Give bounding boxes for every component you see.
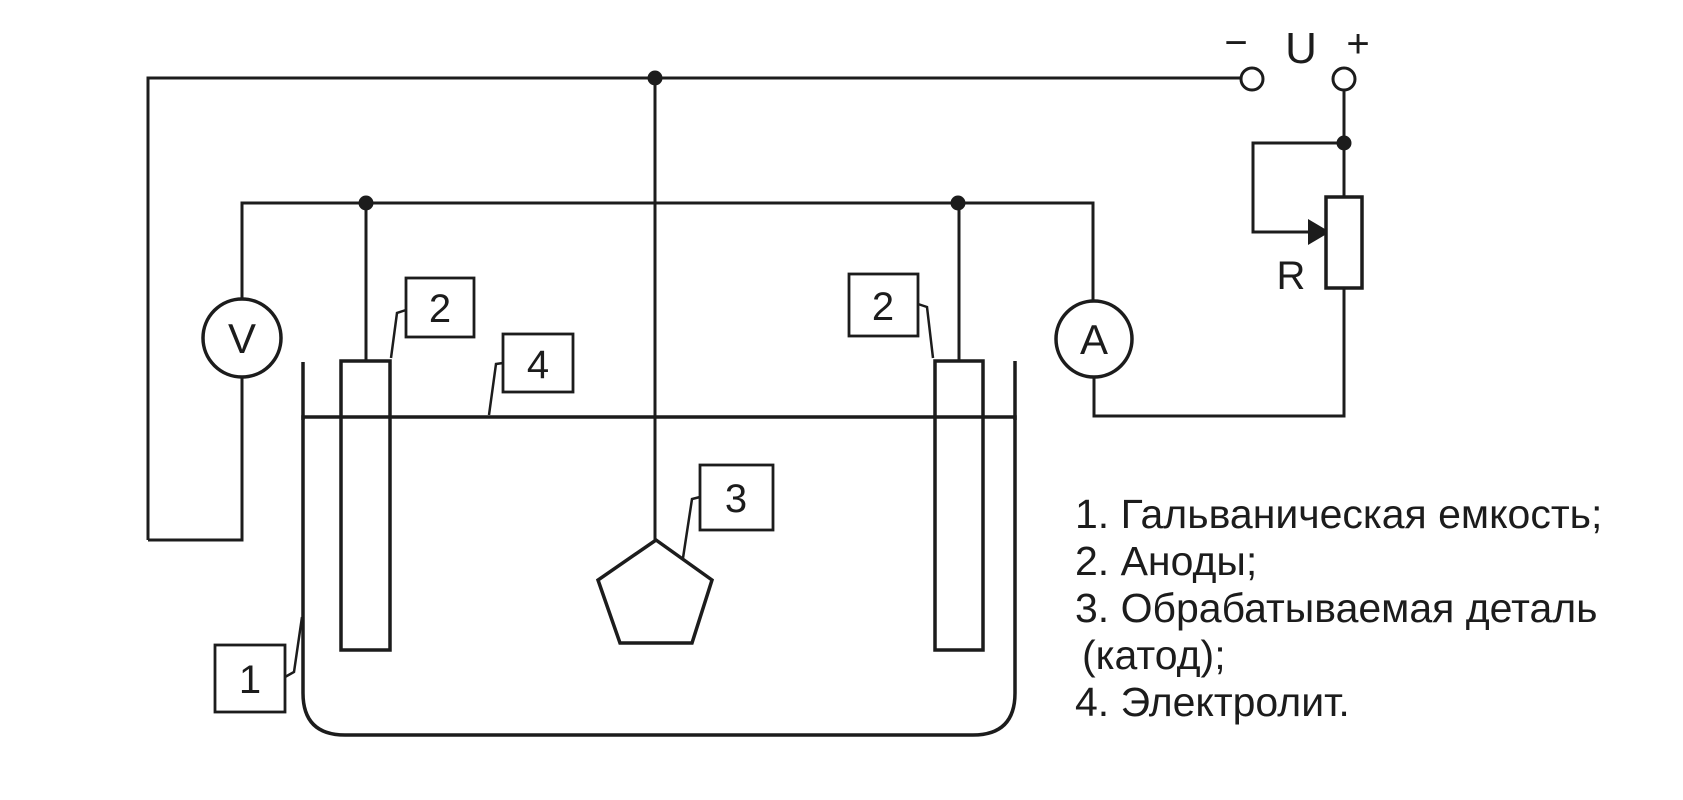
leader-anode-left	[391, 310, 406, 358]
legend-line-5: 4. Электролит.	[1075, 679, 1350, 725]
legend-line-1: 1. Гальваническая емкость;	[1075, 491, 1602, 537]
legend-line-3: 3. Обрабатываемая деталь	[1075, 585, 1598, 631]
legend-line-4: (катод);	[1082, 632, 1226, 678]
callout-label-electrolyte: 4	[527, 343, 549, 387]
minus-terminal	[1241, 68, 1263, 90]
supply-voltage-label: U	[1285, 24, 1317, 73]
voltmeter-label: V	[228, 315, 256, 362]
leader-tank	[285, 617, 302, 677]
anode-right	[935, 361, 983, 650]
leader-anode-right	[918, 304, 933, 358]
callout-label-workpiece: 3	[725, 477, 747, 521]
wire-voltmeter-bottom	[148, 377, 242, 540]
wire-anode-bus	[242, 203, 1093, 301]
rheostat-label: R	[1277, 254, 1306, 298]
anode-left	[341, 361, 390, 650]
supply-minus-label: −	[1224, 21, 1247, 65]
callout-label-anode-left: 2	[429, 287, 451, 331]
electrolyte-fill	[303, 417, 1015, 735]
ammeter-label: A	[1080, 316, 1108, 363]
legend-line-2: 2. Аноды;	[1075, 538, 1257, 584]
junction-dot	[1337, 136, 1352, 151]
rheostat-body	[1326, 197, 1362, 288]
junction-dot	[359, 196, 374, 211]
electroplating-diagram: − U + R V A 1 2 4 3	[0, 0, 1683, 800]
callout-label-anode-right: 2	[872, 285, 894, 329]
junction-dot	[951, 196, 966, 211]
supply-plus-label: +	[1346, 22, 1369, 66]
junction-dot	[648, 71, 663, 86]
circuit-diagram-svg: − U + R V A 1 2 4 3	[0, 0, 1683, 800]
leader-electrolyte	[489, 363, 503, 415]
leader-workpiece	[683, 497, 700, 558]
plus-terminal	[1333, 68, 1355, 90]
workpiece-pentagon	[598, 540, 712, 643]
callout-label-tank: 1	[239, 658, 261, 702]
